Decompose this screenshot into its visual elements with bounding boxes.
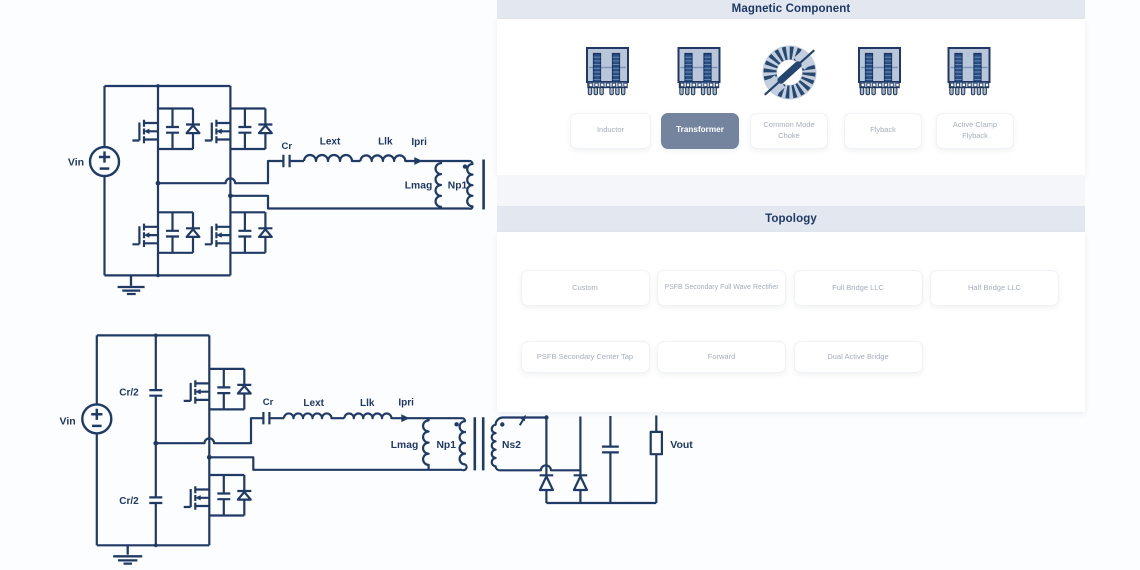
svg-text:Llk: Llk: [360, 398, 375, 409]
svg-text:Ns2: Ns2: [502, 440, 521, 451]
svg-text:Ipri: Ipri: [411, 137, 427, 148]
svg-text:Cr/2: Cr/2: [119, 388, 139, 399]
svg-text:Cr: Cr: [282, 141, 293, 152]
svg-text:Vin: Vin: [60, 416, 76, 428]
svg-text:Lext: Lext: [320, 137, 341, 148]
svg-text:Lext: Lext: [303, 398, 324, 409]
svg-text:Vout: Vout: [670, 439, 693, 451]
svg-text:Cr/2: Cr/2: [119, 496, 139, 507]
svg-text:Ipri: Ipri: [398, 398, 414, 409]
svg-text:Lmag: Lmag: [391, 440, 418, 451]
svg-text:Lmag: Lmag: [405, 180, 432, 191]
svg-text:Cr: Cr: [263, 397, 274, 408]
svg-text:Vin: Vin: [68, 157, 84, 169]
svg-text:Llk: Llk: [378, 137, 393, 148]
svg-text:Np1: Np1: [436, 440, 456, 451]
svg-text:Np1: Np1: [448, 180, 468, 191]
